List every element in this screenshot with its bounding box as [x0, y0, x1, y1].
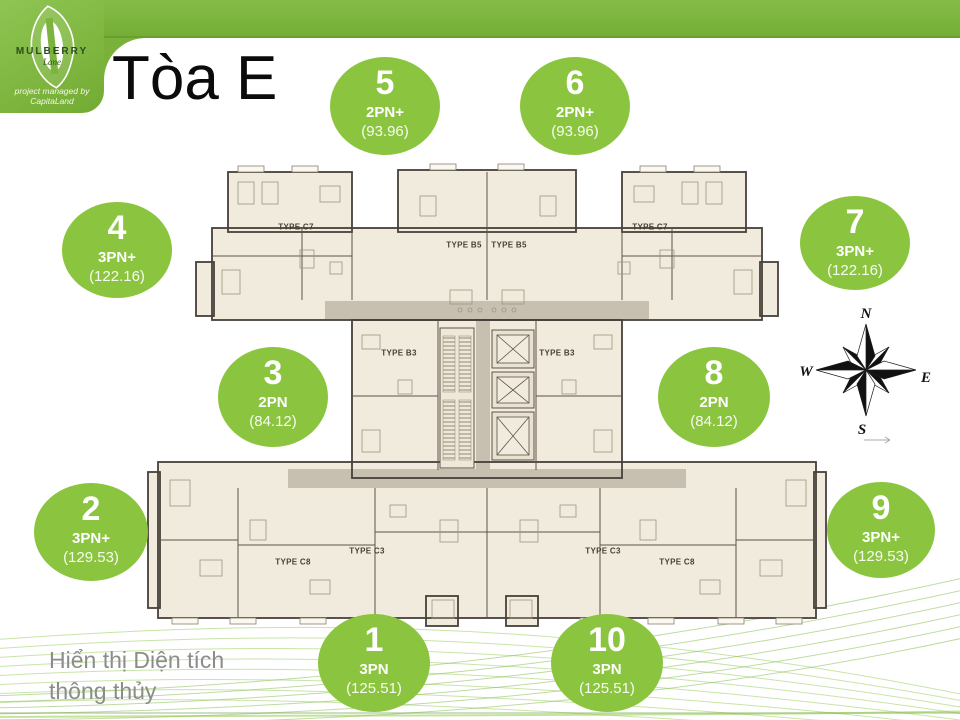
unit-type: 3PN: [551, 660, 663, 679]
unit-type: 2PN+: [520, 103, 630, 122]
unit-number: 10: [551, 621, 663, 659]
unit-number: 9: [827, 489, 935, 527]
unit-area: (129.53): [827, 547, 935, 567]
plan-type-label: TYPE C3: [585, 547, 620, 556]
unit-area: (84.12): [658, 412, 770, 432]
mulberry-logo: MULBERRY Lane project managed by CapitaL…: [0, 0, 104, 113]
unit-type: 3PN+: [34, 529, 148, 548]
unit-number: 8: [658, 354, 770, 392]
managed-by-text: project managed by CapitaLand: [0, 86, 104, 106]
unit-number: 7: [800, 203, 910, 241]
unit-number: 3: [218, 354, 328, 392]
unit-number: 4: [62, 209, 172, 247]
legend-note-line1: Hiển thị Diện tích: [49, 645, 224, 676]
unit-badge-2: 2 3PN+ (129.53): [34, 483, 148, 581]
unit-badge-9: 9 3PN+ (129.53): [827, 482, 935, 578]
unit-number: 2: [34, 490, 148, 528]
plan-type-label: TYPE C3: [349, 547, 384, 556]
brand-name: MULBERRY: [0, 46, 104, 57]
unit-badge-7: 7 3PN+ (122.16): [800, 196, 910, 290]
plan-type-label: TYPE B3: [381, 349, 416, 358]
unit-area: (122.16): [800, 261, 910, 281]
plan-type-label: TYPE C8: [659, 558, 694, 567]
plan-type-label: TYPE B5: [491, 241, 526, 250]
unit-area: (125.51): [551, 679, 663, 699]
compass-star: N W E S: [799, 306, 931, 443]
unit-type: 3PN+: [62, 248, 172, 267]
unit-badge-8: 8 2PN (84.12): [658, 347, 770, 447]
plan-type-label: TYPE B3: [539, 349, 574, 358]
compass-rose-icon: N W E S: [798, 298, 938, 450]
page-title: Tòa E: [112, 46, 277, 111]
unit-number: 5: [330, 64, 440, 102]
legend-note-line2: thông thủy: [49, 676, 224, 707]
unit-badge-4: 4 3PN+ (122.16): [62, 202, 172, 298]
unit-badge-5: 5 2PN+ (93.96): [330, 57, 440, 155]
plan-type-label: TYPE C7: [632, 223, 667, 232]
unit-type: 2PN: [218, 393, 328, 412]
unit-type: 2PN: [658, 393, 770, 412]
unit-badge-1: 1 3PN (125.51): [318, 614, 430, 712]
elevator-core: [492, 330, 534, 460]
floor-plan-corridors: [288, 301, 686, 488]
svg-text:S: S: [858, 422, 866, 438]
unit-number: 1: [318, 621, 430, 659]
unit-area: (93.96): [330, 122, 440, 142]
unit-type: 2PN+: [330, 103, 440, 122]
unit-number: 6: [520, 64, 630, 102]
stair-core: [440, 328, 474, 468]
plan-type-label: TYPE B5: [446, 241, 481, 250]
plan-type-label: TYPE C8: [275, 558, 310, 567]
unit-type: 3PN: [318, 660, 430, 679]
unit-area: (125.51): [318, 679, 430, 699]
svg-text:E: E: [920, 370, 931, 386]
unit-area: (122.16): [62, 267, 172, 287]
unit-badge-6: 6 2PN+ (93.96): [520, 57, 630, 155]
unit-area: (84.12): [218, 412, 328, 432]
unit-type: 3PN+: [827, 528, 935, 547]
svg-text:N: N: [860, 306, 873, 322]
plan-type-label: TYPE C7: [278, 223, 313, 232]
legend-note: Hiển thị Diện tích thông thủy: [49, 645, 224, 707]
top-green-bar: [0, 0, 960, 38]
unit-badge-3: 3 2PN (84.12): [218, 347, 328, 447]
unit-badge-10: 10 3PN (125.51): [551, 614, 663, 712]
unit-area: (93.96): [520, 122, 630, 142]
slide-root: TYPE C7 TYPE B5 TYPE B5 TYPE C7 TYPE B3 …: [0, 0, 960, 720]
unit-area: (129.53): [34, 548, 148, 568]
svg-text:W: W: [799, 364, 814, 380]
brand-subname: Lane: [0, 57, 104, 67]
unit-type: 3PN+: [800, 242, 910, 261]
